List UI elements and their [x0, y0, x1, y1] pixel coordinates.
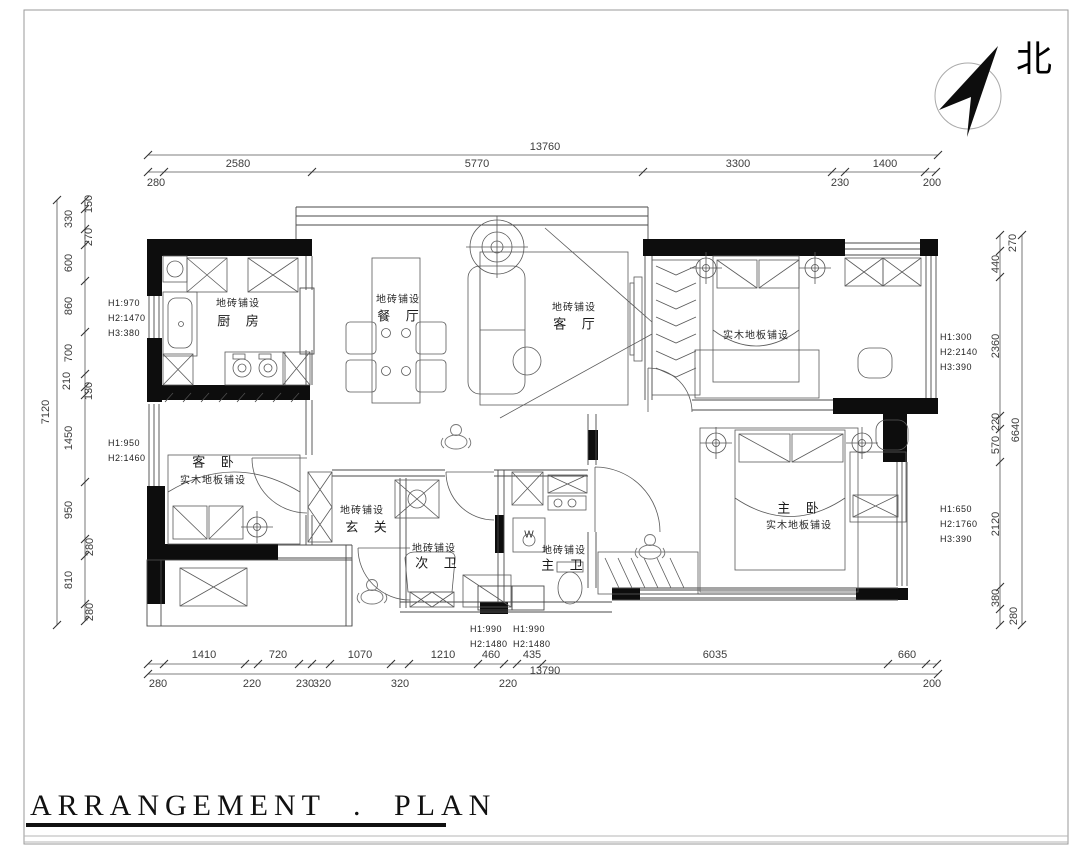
- dim: 2360: [990, 334, 1002, 358]
- dim: 220: [990, 413, 1002, 431]
- dim: 200: [923, 678, 941, 690]
- sheet-title: ARRANGEMENT . PLAN: [30, 789, 496, 823]
- window-note-right-lower: H1:650 H2:1760 H3:390: [940, 502, 978, 547]
- dim: 280: [147, 177, 165, 189]
- dim: 660: [898, 649, 916, 661]
- master-bedroom-name: 主 卧: [777, 498, 825, 517]
- dining-floor-label: 地砖铺设: [376, 291, 420, 306]
- kitchen-name: 厨 房: [217, 311, 265, 330]
- dim: 950: [63, 501, 75, 519]
- entry-name: 玄 关: [345, 517, 393, 536]
- dim: 230: [831, 177, 849, 189]
- dim: 280: [1008, 607, 1020, 625]
- dim: 2120: [990, 512, 1002, 536]
- doors: [252, 368, 692, 600]
- dim: 220: [243, 678, 261, 690]
- washer-label: W: [524, 530, 533, 541]
- dining-name: 餐 厅: [377, 306, 425, 325]
- dim: 810: [63, 571, 75, 589]
- kitchen-floor-label: 地砖铺设: [216, 295, 260, 310]
- dim: 280: [84, 538, 96, 556]
- master-bedroom-floor-label: 实木地板铺设: [766, 517, 832, 532]
- second-bath-name: 次 卫: [415, 553, 463, 572]
- dim: 130: [83, 382, 95, 400]
- dim: 220: [499, 678, 517, 690]
- guest-bedroom-floor-label: 实木地板铺设: [180, 472, 246, 487]
- dim: 700: [63, 344, 75, 362]
- dim: 330: [63, 210, 75, 228]
- living-floor-label: 地砖铺设: [552, 299, 596, 314]
- dim: 320: [391, 678, 409, 690]
- dim: 270: [1007, 234, 1019, 252]
- entry-floor-label: 地砖铺设: [340, 502, 384, 517]
- dim: 230: [296, 678, 314, 690]
- dim: 860: [63, 297, 75, 315]
- north-arrow-icon: [935, 46, 1001, 137]
- dim: 440: [990, 255, 1002, 273]
- dim: 600: [63, 254, 75, 272]
- window-note-guest: H1:950 H2:1460: [108, 436, 146, 466]
- living-name: 客 厅: [553, 314, 601, 333]
- window-note-bath-right: H1:990 H2:1480: [513, 622, 551, 652]
- window-note-right-upper: H1:300 H2:2140 H3:390: [940, 330, 978, 375]
- window-note-kitchen: H1:970 H2:1470 H3:380: [108, 296, 146, 341]
- north-label: 北: [1016, 30, 1052, 82]
- dim-right-total: 6640: [1010, 418, 1022, 442]
- dim: 6035: [703, 649, 727, 661]
- dim: 210: [61, 372, 73, 390]
- arrangement-plan-sheet: ARRANGEMENT . PLAN 北 13760 2580 5770 330…: [0, 0, 1080, 853]
- dim: 720: [269, 649, 287, 661]
- dim: 1400: [873, 158, 897, 170]
- sheet-border: [24, 10, 1068, 844]
- dim-bottom-total: 13790: [530, 665, 561, 677]
- dim-top-total: 13760: [530, 141, 561, 153]
- master-bath-fixtures: [512, 472, 587, 604]
- dim: 280: [84, 603, 96, 621]
- dim: 270: [83, 228, 95, 246]
- dim: 1450: [63, 426, 75, 450]
- dim: 5770: [465, 158, 489, 170]
- dim-left-total: 7120: [40, 400, 52, 424]
- dining-set: [346, 258, 446, 403]
- dim: 320: [313, 678, 331, 690]
- dim: 280: [149, 678, 167, 690]
- dim: 200: [923, 177, 941, 189]
- dim: 1070: [348, 649, 372, 661]
- dim: 1410: [192, 649, 216, 661]
- master-bath-name: 主 卫: [541, 555, 589, 574]
- dim: 2580: [226, 158, 250, 170]
- dim: 3300: [726, 158, 750, 170]
- bedroom2-floor-label: 实木地板铺设: [723, 327, 789, 342]
- dim: 150: [83, 195, 95, 213]
- balcony-unit: [180, 568, 247, 606]
- guest-bedroom-name: 客 卧: [192, 452, 240, 471]
- dim: 1210: [431, 649, 455, 661]
- window-note-bath-left: H1:990 H2:1480: [470, 622, 508, 652]
- dim: 380: [990, 589, 1002, 607]
- dim: 570: [990, 436, 1002, 454]
- floor-plan-drawing: [0, 0, 1080, 853]
